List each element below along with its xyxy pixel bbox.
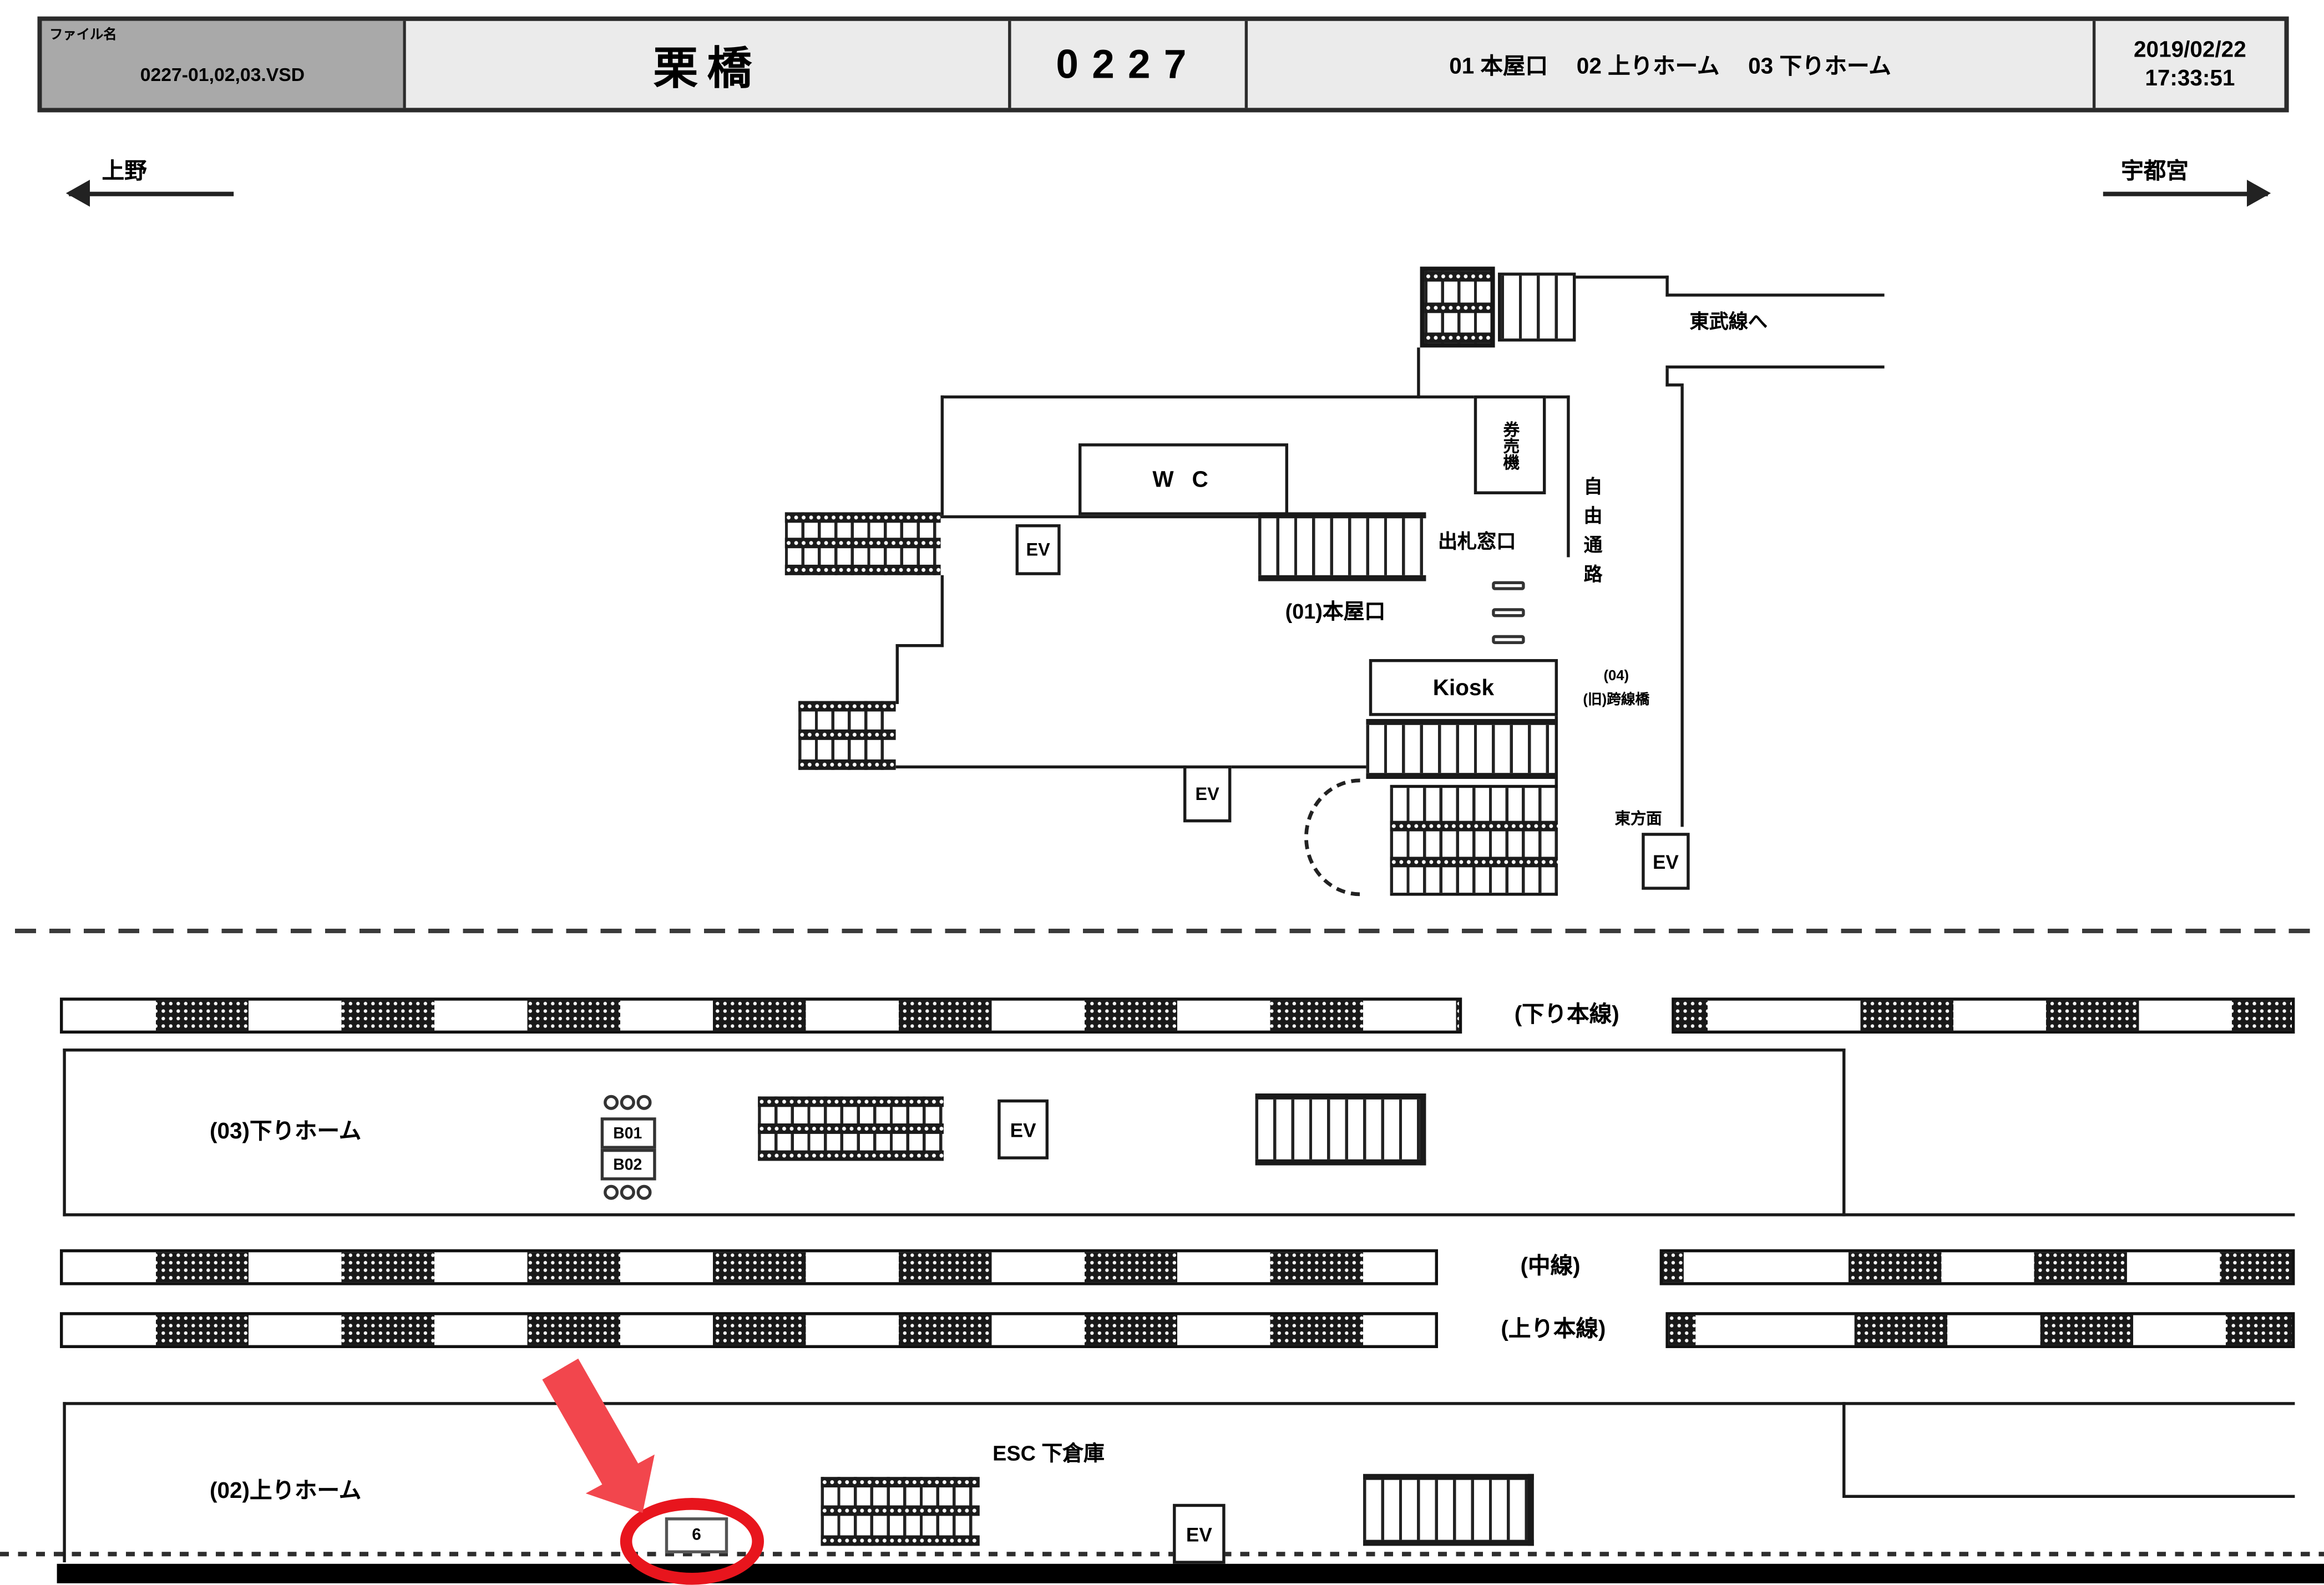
concourse-bottom-wall xyxy=(1231,766,1369,768)
escalator-rail xyxy=(821,1536,980,1546)
esc-storage-label: ESC 下倉庫 xyxy=(929,1438,1168,1468)
tobu-line-label: 東武線へ xyxy=(1690,306,1768,334)
platform02-elevator: EV xyxy=(1173,1504,1226,1564)
track-up-main xyxy=(60,1312,1438,1348)
free-passage-label: 自由通路 xyxy=(1577,477,1606,594)
track-down-main-label: (下り本線) xyxy=(1465,997,1669,1034)
platform02-escalator xyxy=(821,1477,980,1546)
sign-b01: B01 xyxy=(600,1117,655,1149)
time: 17:33:51 xyxy=(2145,64,2235,93)
tobu-corridor-top-wall xyxy=(1665,293,1884,296)
platform02-left-edge xyxy=(63,1402,65,1562)
concourse-left-wall xyxy=(941,575,944,647)
file-name-cell: ファイル名 0227-01,02,03.VSD xyxy=(42,21,403,108)
escalator-rail xyxy=(821,1506,980,1516)
ticket-machine-label: 券売機 xyxy=(1498,420,1522,469)
free-passage-right-wall xyxy=(1680,387,1683,827)
escalator-rail xyxy=(1425,271,1491,282)
escalator-rail xyxy=(758,1123,944,1134)
track-down-main xyxy=(1672,997,2295,1034)
track-middle xyxy=(60,1249,1438,1285)
west-lower-escalator xyxy=(798,701,896,770)
ev-label: EV xyxy=(1186,1523,1212,1546)
ev-label: EV xyxy=(1196,783,1219,804)
timestamp-cell: 2019/02/22 17:33:51 xyxy=(2093,21,2285,108)
ev-label: EV xyxy=(1010,1118,1036,1141)
platform03-top-edge xyxy=(63,1049,1845,1051)
kiosk: Kiosk xyxy=(1369,659,1558,716)
ev-label: EV xyxy=(1026,539,1050,560)
track-middle xyxy=(1660,1249,2295,1285)
escalator-rail xyxy=(785,538,941,548)
left-arrow-icon xyxy=(66,180,90,207)
main-entrance-label: (01)本屋口 xyxy=(1285,596,1386,626)
escalator-rail xyxy=(1390,821,1558,832)
track-middle-label: (中線) xyxy=(1441,1249,1659,1285)
sign-b02: B02 xyxy=(600,1149,655,1181)
ticket-window-label: 出札窓口 xyxy=(1393,526,1561,554)
kiosk-stairs xyxy=(1366,719,1558,779)
utsunomiya-arrow-line xyxy=(2103,192,2268,196)
concourse-left-wall xyxy=(896,644,899,704)
overpass-number-label: (04) xyxy=(1582,668,1650,685)
free-passage-left-wall xyxy=(1567,396,1569,558)
kiosk-label: Kiosk xyxy=(1433,675,1494,700)
b01-b02-sign: B01 B02 xyxy=(596,1091,659,1208)
wall xyxy=(896,644,944,647)
platform03-bottom-edge xyxy=(63,1213,2295,1216)
concourse-bottom-wall xyxy=(896,766,1187,768)
sheet-sections: 01 本屋口 02 上りホーム 03 下りホーム xyxy=(1245,21,2093,108)
wall xyxy=(1576,276,1668,278)
file-name-label: ファイル名 xyxy=(49,24,117,43)
station-name: 栗橋 xyxy=(403,21,1008,108)
west-upper-escalator xyxy=(785,512,941,575)
escalator-rail xyxy=(1390,857,1558,867)
escalator-rail xyxy=(1425,332,1491,343)
platform02-inner-edge xyxy=(1842,1495,2295,1498)
ticket-gate xyxy=(1492,581,1525,590)
tobu-corridor-bottom-wall xyxy=(1665,366,1884,368)
ev-label: EV xyxy=(1653,850,1679,873)
platform03-stairs xyxy=(1255,1093,1426,1166)
direction-ueno-label: 上野 xyxy=(102,154,147,186)
right-arrow-icon xyxy=(2247,180,2271,207)
title-bar: ファイル名 0227-01,02,03.VSD 栗橋 0227 01 本屋口 0… xyxy=(38,17,2289,113)
platform03-divider xyxy=(1842,1049,1845,1216)
track-up-main-label: (上り本線) xyxy=(1441,1312,1665,1348)
switchback-stairs xyxy=(1390,785,1558,896)
escalator-rail xyxy=(1425,302,1491,313)
concourse-elevator: EV xyxy=(1016,524,1061,575)
ticket-gate xyxy=(1492,635,1525,644)
north-stairs xyxy=(1498,272,1576,341)
east-elevator: EV xyxy=(1642,833,1689,890)
ueno-arrow-line xyxy=(69,192,234,196)
direction-utsunomiya-label: 宇都宮 xyxy=(2121,154,2189,186)
escalator-rail xyxy=(821,1477,980,1487)
wc-label: W C xyxy=(1152,467,1214,492)
curved-wall-arc xyxy=(1270,776,1366,899)
platform02-divider xyxy=(1842,1402,1845,1498)
wall xyxy=(1417,347,1420,398)
file-name-value: 0227-01,02,03.VSD xyxy=(140,64,305,85)
escalator-rail xyxy=(785,512,941,523)
wc-room: W C xyxy=(1079,443,1288,515)
sign-b01-label: B01 xyxy=(613,1124,642,1142)
platform03-elevator: EV xyxy=(998,1100,1049,1159)
ticket-gate xyxy=(1492,608,1525,617)
escalator-rail xyxy=(798,701,896,712)
bench-circles xyxy=(596,1091,659,1118)
platform03-left-edge xyxy=(63,1049,65,1216)
date: 2019/02/22 xyxy=(2134,36,2246,64)
concourse-left-wall xyxy=(941,396,944,515)
section-divider xyxy=(15,929,2313,933)
track-up-main xyxy=(1665,1312,2295,1348)
escalator-rail xyxy=(798,759,896,770)
escalator-rail xyxy=(785,565,941,575)
platform02-bottom-dotted-edge xyxy=(0,1552,2324,1556)
south-elevator: EV xyxy=(1183,766,1231,823)
image-bottom-bar xyxy=(57,1564,2324,1583)
ticket-machine-room: 券売機 xyxy=(1474,396,1546,494)
escalator-rail xyxy=(758,1151,944,1161)
bench-circles xyxy=(596,1181,659,1208)
direction-ueno: 上野 xyxy=(69,154,234,202)
station-diagram-page: ファイル名 0227-01,02,03.VSD 栗橋 0227 01 本屋口 0… xyxy=(0,0,2324,1583)
escalator-rail xyxy=(798,730,896,740)
overpass-name-label: (旧)跨線橋 xyxy=(1561,687,1672,708)
platform03-label: (03)下りホーム xyxy=(210,1115,361,1146)
track-down-main xyxy=(60,997,1462,1034)
direction-utsunomiya: 宇都宮 xyxy=(2103,154,2268,202)
platform02-label: (02)上りホーム xyxy=(210,1474,361,1506)
north-escalator xyxy=(1420,267,1495,348)
platform02-top-edge xyxy=(63,1402,2295,1405)
escalator-rail xyxy=(758,1096,944,1107)
sign-b02-label: B02 xyxy=(613,1156,642,1173)
platform02-stairs xyxy=(1363,1474,1534,1546)
station-code: 0227 xyxy=(1008,21,1245,108)
east-direction-label: 東方面 xyxy=(1615,807,1662,830)
highlight-arrow-icon xyxy=(527,1357,692,1537)
platform03-escalator xyxy=(758,1096,944,1161)
